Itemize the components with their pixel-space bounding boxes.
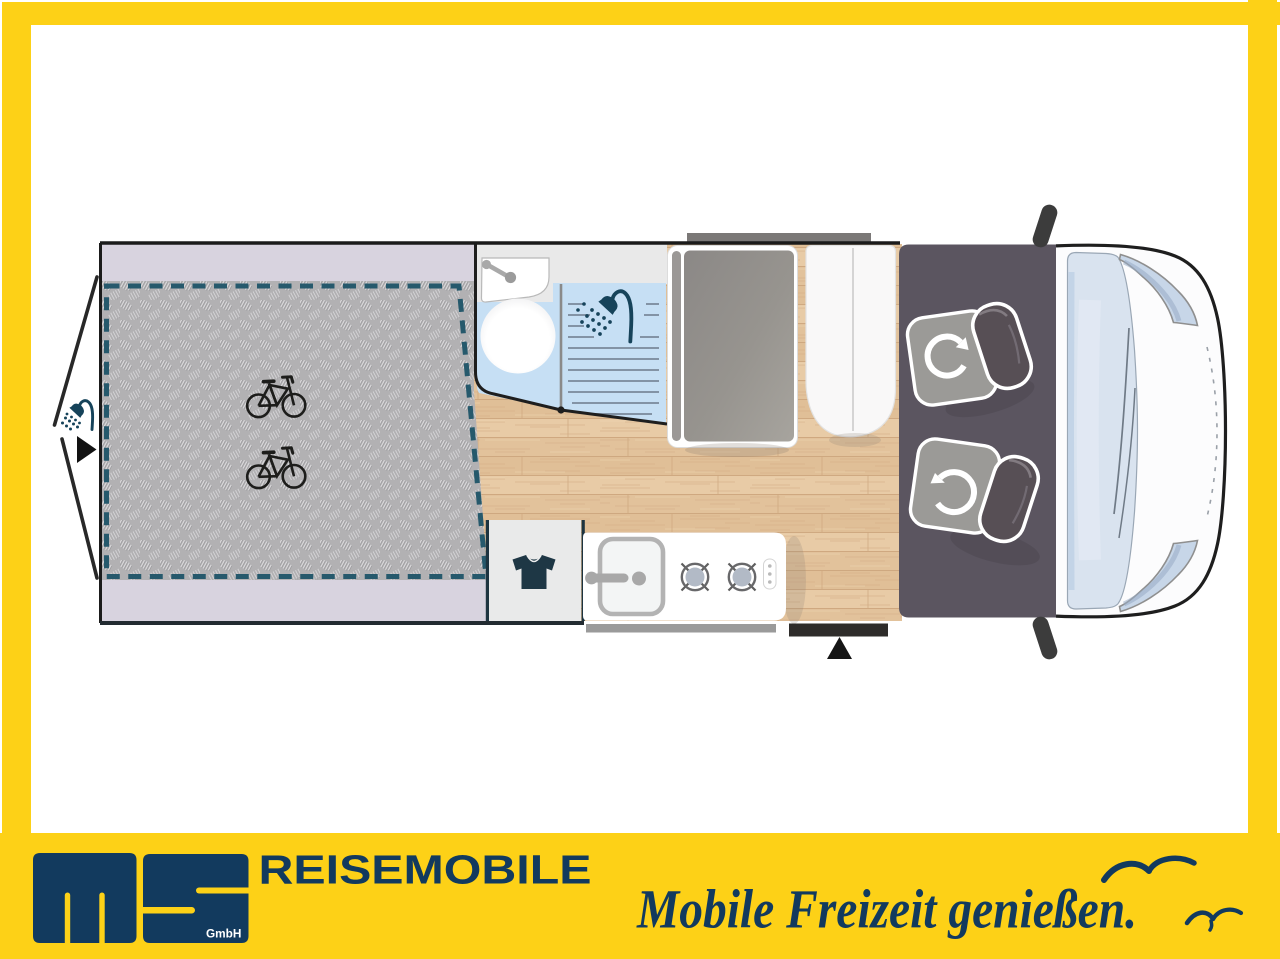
- svg-text:GmbH: GmbH: [206, 927, 241, 941]
- svg-text:Mobile Freizeit genießen.: Mobile Freizeit genießen.: [636, 879, 1137, 940]
- svg-text:REISEMOBILE: REISEMOBILE: [259, 847, 592, 893]
